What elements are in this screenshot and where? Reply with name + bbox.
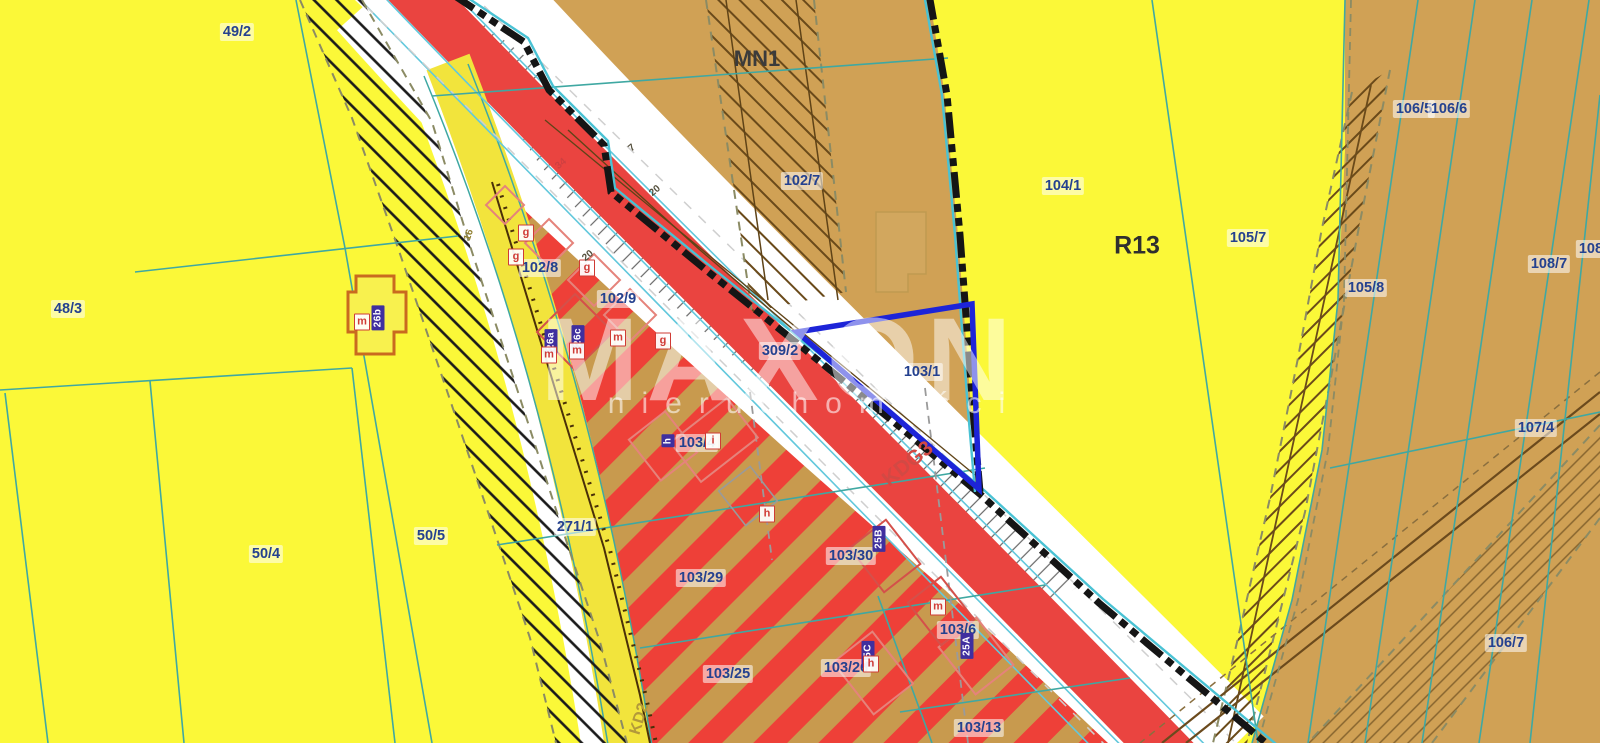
zoning-map-svg [0, 0, 1600, 743]
map-canvas[interactable]: MAXON nieruchomości 49/248/350/450/5271/… [0, 0, 1600, 743]
